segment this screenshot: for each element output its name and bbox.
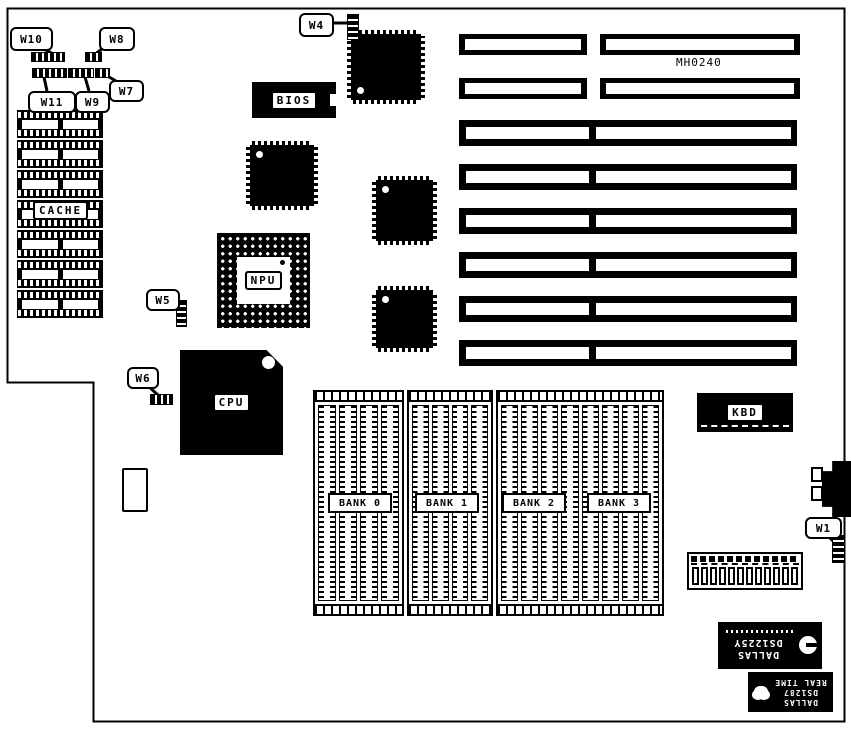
socket-teeth xyxy=(498,392,662,402)
keyboard-controller-chip: KBD xyxy=(697,393,793,432)
dip-pins xyxy=(18,142,102,148)
npu-socket: NPU xyxy=(217,233,310,328)
expansion-slot xyxy=(459,208,797,234)
power-pin xyxy=(782,567,789,585)
pin1-dot xyxy=(262,356,275,369)
kbd-label: KBD xyxy=(726,403,764,422)
power-pin xyxy=(746,567,753,585)
jumper-label-w10: W10 xyxy=(10,27,53,51)
power-pin xyxy=(692,567,699,585)
brand-text: DALLAS xyxy=(723,649,793,661)
dip-bodies xyxy=(18,150,102,159)
chip-silkscreen: DALLAS DS1225Y xyxy=(718,622,822,669)
bank1-label: BANK 1 xyxy=(415,493,479,513)
expansion-slot xyxy=(459,34,587,55)
jumper-w6-pins xyxy=(150,394,173,405)
jumper-label-w5: W5 xyxy=(146,289,180,311)
qfp-chip-2 xyxy=(246,141,318,210)
cache-label: CACHE xyxy=(33,201,88,220)
bios-chip: BIOS xyxy=(252,82,336,118)
dip-pins xyxy=(18,220,102,226)
jumper-label-w9: W9 xyxy=(75,91,110,113)
cache-dip-row xyxy=(17,110,103,138)
brand-text: DALLAS xyxy=(774,697,826,707)
qfp-chip-4 xyxy=(372,286,437,352)
dip-pins xyxy=(18,190,102,196)
chip-silkscreen: DALLAS DS1287 REAL TIME xyxy=(748,672,833,712)
connector-dash xyxy=(691,563,799,565)
cache-dip-row xyxy=(17,260,103,288)
npu-socket-center: NPU xyxy=(237,257,290,304)
cpu-label: CPU xyxy=(213,393,251,412)
expansion-slot xyxy=(459,164,797,190)
slot-row xyxy=(459,78,800,99)
dip-pins xyxy=(18,172,102,178)
jumper-label-w8: W8 xyxy=(99,27,135,51)
qfp-chip-3 xyxy=(372,176,437,245)
dip-pins xyxy=(18,160,102,166)
jumper-w10-pins xyxy=(31,52,65,62)
rtc-chip-ds1225y: DALLAS DS1225Y xyxy=(718,622,822,669)
jumper-w9-pins xyxy=(68,68,94,78)
dip-bodies xyxy=(18,180,102,189)
npu-label: NPU xyxy=(245,271,283,290)
pin1-dot xyxy=(280,260,285,265)
crystal-oscillator xyxy=(122,468,148,512)
pin1-dot xyxy=(357,87,364,94)
jumper-w8-pins xyxy=(85,52,102,62)
jumper-label-w1: W1 xyxy=(805,517,842,539)
dip-pins xyxy=(18,262,102,268)
power-pin xyxy=(710,567,717,585)
rtc-chip-ds1287: DALLAS DS1287 REAL TIME xyxy=(748,672,833,712)
cache-dip-row xyxy=(17,170,103,198)
expansion-slot xyxy=(600,78,800,99)
expansion-slot xyxy=(459,296,797,322)
bios-notch xyxy=(330,94,337,106)
dip-bodies xyxy=(18,300,102,309)
dip-bodies xyxy=(18,270,102,279)
expansion-slot xyxy=(600,34,800,55)
slot-row xyxy=(459,34,800,55)
bank2-label: BANK 2 xyxy=(502,493,566,513)
socket-teeth xyxy=(409,392,491,402)
small-print xyxy=(723,631,793,634)
expansion-slots-16bit xyxy=(459,120,797,384)
expansion-slot xyxy=(459,340,797,366)
expansion-slot xyxy=(459,120,797,146)
power-pin xyxy=(701,567,708,585)
power-pin xyxy=(791,567,798,585)
power-pin xyxy=(719,567,726,585)
bios-label: BIOS xyxy=(271,91,318,110)
power-pin xyxy=(737,567,744,585)
dip-pins xyxy=(18,250,102,256)
jumper-label-w11: W11 xyxy=(28,91,76,113)
dip-pins xyxy=(18,232,102,238)
cache-dip-row xyxy=(17,140,103,168)
connector-tab xyxy=(811,467,823,482)
cache-dip-row xyxy=(17,230,103,258)
connector-tab xyxy=(811,486,823,501)
socket-teeth xyxy=(315,604,402,614)
dip-bodies xyxy=(18,120,102,129)
qfp-chip-1 xyxy=(347,30,425,104)
dallas-logo-icon xyxy=(799,637,817,655)
pin1-dot xyxy=(382,186,389,193)
expansion-slots-8bit xyxy=(459,34,800,122)
socket-teeth xyxy=(409,604,491,614)
part-text: DS1225Y xyxy=(723,637,793,649)
bank3-label: BANK 3 xyxy=(587,493,651,513)
bank0-label: BANK 0 xyxy=(328,493,392,513)
motherboard-diagram: CACHE BIOS NPU CPU MH0240 xyxy=(0,0,851,731)
power-connector xyxy=(687,552,803,590)
dip-pins xyxy=(18,280,102,286)
jumper-label-w4: W4 xyxy=(299,13,334,37)
power-pin xyxy=(773,567,780,585)
dip-pins xyxy=(18,130,102,136)
cache-dip-row xyxy=(17,290,103,318)
watchdog-bug-icon xyxy=(754,686,768,698)
power-pin xyxy=(728,567,735,585)
board-silkscreen: MH0240 xyxy=(676,56,722,69)
expansion-slot xyxy=(459,78,587,99)
jumper-w4-pins xyxy=(347,14,359,40)
socket-teeth xyxy=(315,392,402,402)
power-pin xyxy=(755,567,762,585)
jumper-w1-pins xyxy=(832,535,845,563)
jumper-w7-pins xyxy=(95,68,110,78)
connector-teeth xyxy=(691,556,799,562)
jumper-label-w6: W6 xyxy=(127,367,159,389)
pin1-dot xyxy=(382,296,389,303)
jumper-label-w7: W7 xyxy=(109,80,144,102)
power-pins xyxy=(689,567,801,588)
part-text: DS1287 xyxy=(774,687,826,697)
expansion-slot xyxy=(459,252,797,278)
power-pin xyxy=(764,567,771,585)
dip-pins xyxy=(18,292,102,298)
socket-teeth xyxy=(498,604,662,614)
dip-pins xyxy=(18,310,102,316)
dip-bodies xyxy=(18,240,102,249)
pin1-dot xyxy=(256,151,263,158)
subtitle-text: REAL TIME xyxy=(774,677,826,687)
cpu-chip: CPU xyxy=(180,350,283,455)
jumper-w11-pins xyxy=(32,68,67,78)
